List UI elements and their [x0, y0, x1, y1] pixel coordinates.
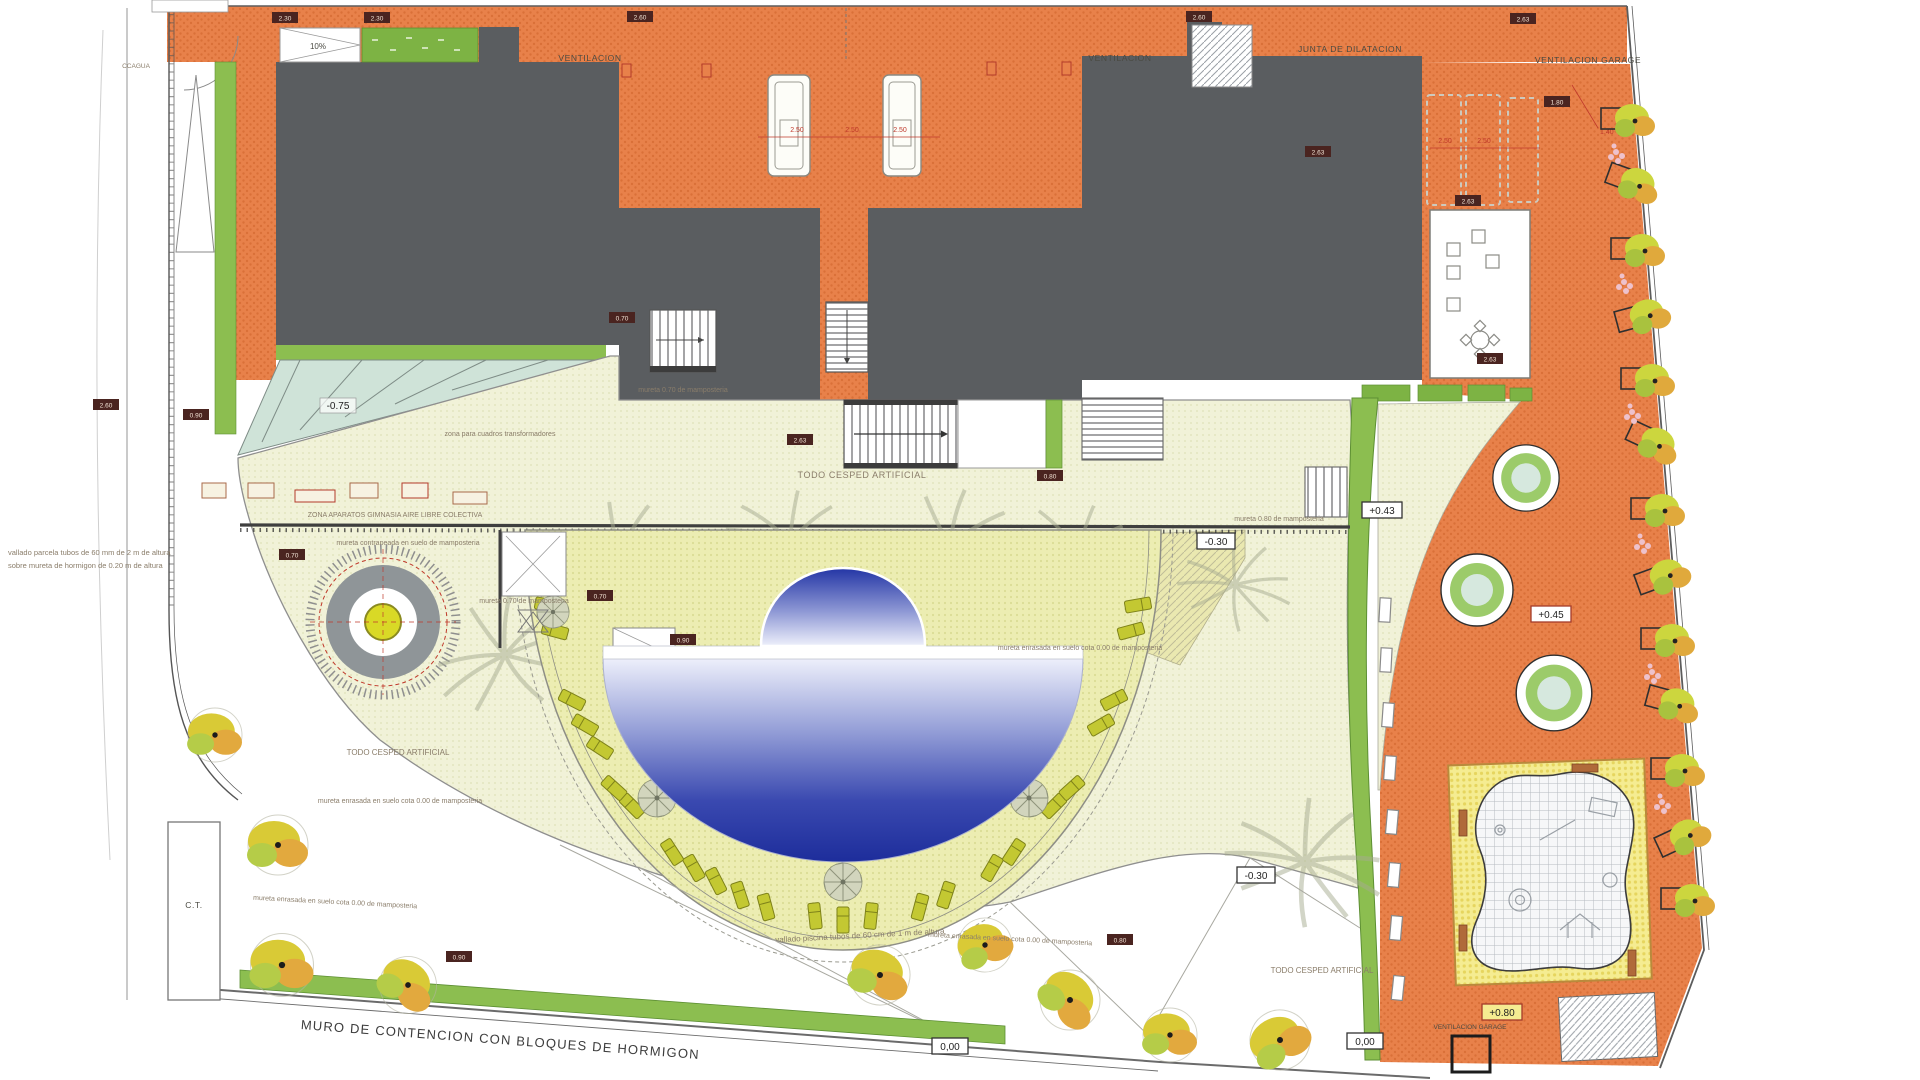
stub-top [479, 27, 519, 62]
stairs-e [1305, 467, 1347, 517]
level-plus043: +0.43 [1369, 506, 1395, 517]
ventilacion-garage-label: VENTILACION GARAGE [1535, 55, 1641, 65]
level-label: -0.75 [327, 401, 350, 412]
mureta-contrapeada-label: mureta contrapeada en suelo de mamposter… [336, 540, 479, 547]
mureta-070-label: mureta 0.70 de mamposteria [638, 387, 728, 394]
mureta-080-label: mureta 0.80 de mamposteria [1234, 516, 1324, 523]
social-room [1430, 210, 1530, 378]
dim-label: 2.50 [1477, 138, 1491, 145]
garage-ramp: 10% [280, 27, 519, 62]
dim-box: 2.30 [371, 16, 384, 23]
vallado-parcela-note-2: sobre mureta de hormigon de 0.20 m de al… [8, 561, 164, 570]
dim-box: 2.63 [1312, 150, 1325, 157]
stair-top-right-building [1192, 25, 1252, 87]
stairs-a [650, 310, 716, 372]
level-zero-2: 0,00 [1355, 1037, 1375, 1048]
dim-box: 0.70 [594, 594, 607, 601]
ventilacion-label-1: VENTILACION [558, 53, 621, 63]
ccagua-label: CCAGUA [122, 63, 150, 70]
dim-box: 2.63 [794, 438, 807, 445]
site-plan-page: 2.50 2.50 2.50 2.50 2.50 1.40 10% [0, 0, 1920, 1080]
dim-box: 2.60 [100, 403, 113, 410]
dim-box: 0.90 [453, 955, 466, 962]
dim-box: 0.80 [1044, 474, 1057, 481]
building-left [276, 62, 619, 345]
dim-box: 2.63 [1462, 199, 1475, 206]
level-minus030-2: -0.30 [1245, 871, 1268, 882]
mureta-enrasada-label-2: mureta enrasada en suelo cota 0.00 de ma… [998, 645, 1162, 652]
dim-box: 0.80 [1114, 938, 1127, 945]
junta-dilatacion-label: JUNTA DE DILATACION [1298, 44, 1402, 54]
ct-label: C.T. [185, 900, 203, 910]
dim-box: 2.63 [1517, 17, 1530, 24]
dim-box: 0.70 [616, 316, 629, 323]
dim-box: 2.30 [279, 16, 292, 23]
building-right [1082, 56, 1422, 380]
dim-label: 2.50 [845, 127, 859, 134]
level-minus030-1: -0.30 [1205, 537, 1228, 548]
cesped-label-2: TODO CESPED ARTIFICIAL [347, 748, 450, 757]
dim-label: 1.40 [1600, 129, 1614, 136]
dim-box: 0.70 [286, 553, 299, 560]
dim-box: 1.80 [1551, 100, 1564, 107]
site-plan-drawing: 2.50 2.50 2.50 2.50 2.50 1.40 10% [0, 0, 1920, 1080]
meter-box [152, 0, 228, 12]
dim-box: 2.60 [1193, 15, 1206, 22]
mureta-enrasada-label-1: mureta enrasada en suelo cota 0.00 de ma… [318, 798, 482, 805]
dim-label: 2.50 [790, 127, 804, 134]
ct-room: C.T. [168, 822, 220, 1000]
zona-cuadros-label: zona para cuadros transformadores [445, 431, 556, 438]
ramp-slope-label: 10% [310, 42, 326, 51]
zona-aparatos-label: ZONA APARATOS GIMNASIA AIRE LIBRE COLECT… [308, 512, 483, 519]
dim-label: 2.50 [893, 127, 907, 134]
cesped-label-1: TODO CESPED ARTIFICIAL [798, 470, 927, 480]
level-plus045: +0.45 [1538, 610, 1564, 621]
level-zero-1: 0,00 [940, 1042, 960, 1053]
stairs-d [1082, 398, 1163, 460]
dim-box: 2.60 [634, 15, 647, 22]
ventilacion-garage-bottom-label: VENTILACION GARAGE [1434, 1024, 1508, 1031]
ventilacion-label-2: VENTILACION [1088, 53, 1151, 63]
playground [1448, 759, 1652, 986]
green-strip-left [215, 62, 236, 434]
dim-label: 2.50 [1438, 138, 1452, 145]
level-plus080: +0.80 [1489, 1008, 1515, 1019]
bottom-right-stairs [1558, 993, 1657, 1062]
dim-box: 2.63 [1484, 357, 1497, 364]
stairs-b [826, 302, 868, 372]
playground-safety-surface [1472, 772, 1634, 971]
dim-box: 0.90 [677, 638, 690, 645]
hedge-top [362, 28, 478, 62]
building-left-hedge-strip [276, 345, 606, 360]
dim-box: 0.90 [190, 413, 203, 420]
cesped-label-3: TODO CESPED ARTIFICIAL [1271, 966, 1374, 975]
vallado-parcela-note-1: vallado parcela tubos de 60 mm de 2 m de… [8, 548, 171, 557]
stairs-c [844, 400, 1062, 468]
mureta-070-label-2: mureta 0.70 de mamposteria [479, 598, 569, 605]
